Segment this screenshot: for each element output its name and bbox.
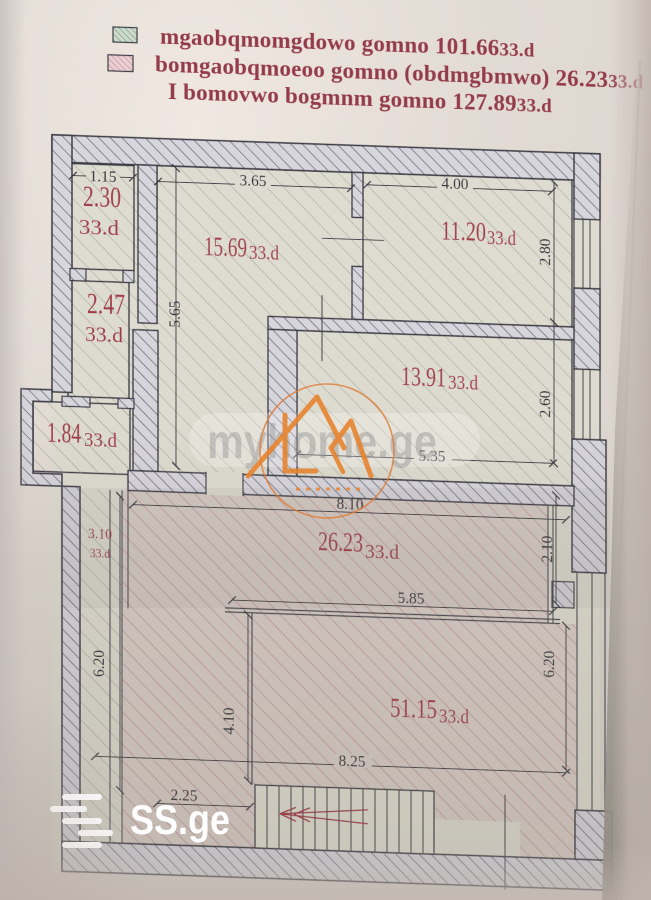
svg-text:myhome.ge: myhome.ge <box>207 416 437 469</box>
